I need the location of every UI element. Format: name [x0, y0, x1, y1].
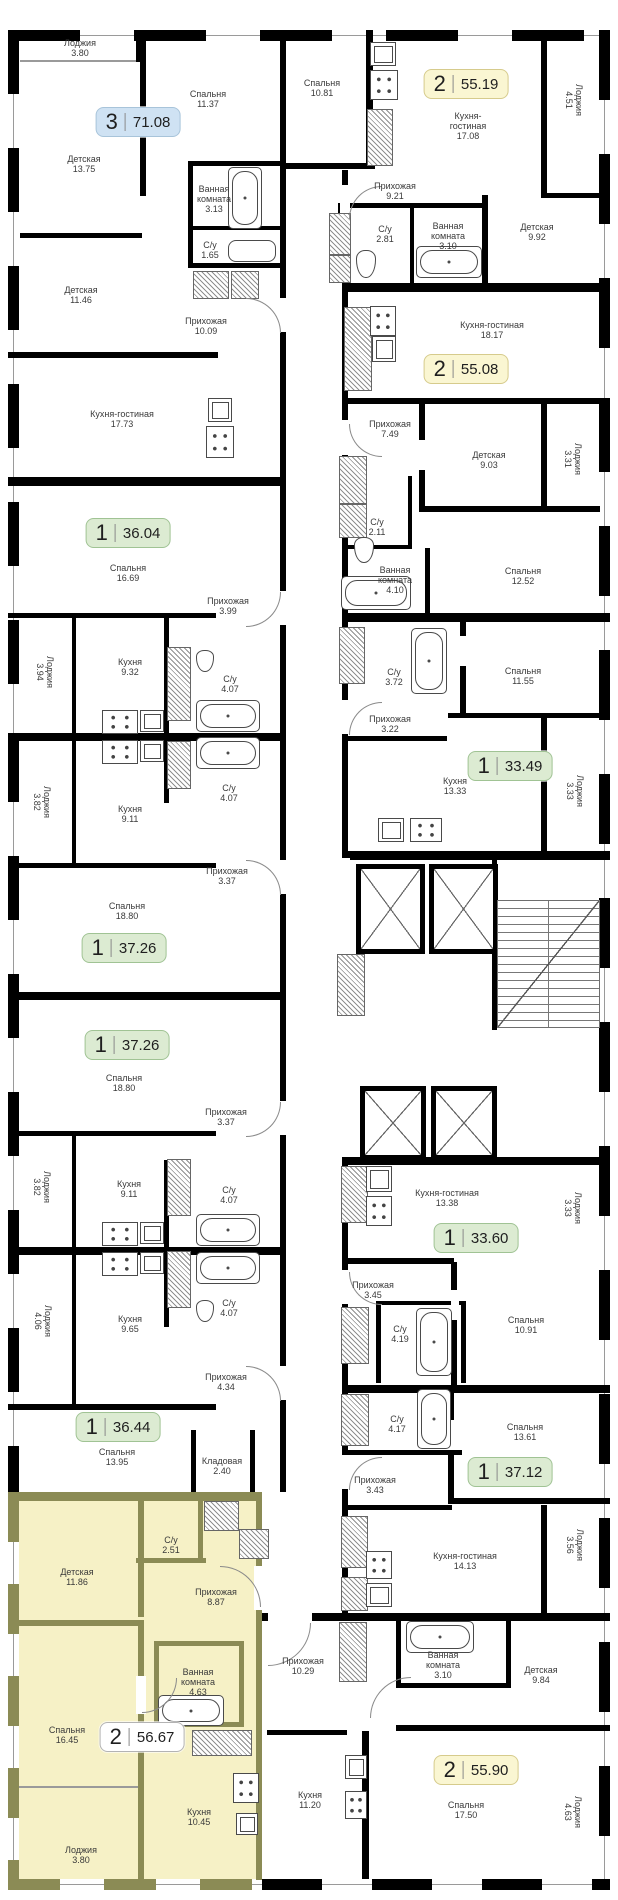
- room-label: Кухня10.45: [187, 1807, 211, 1827]
- room-label: Прихожая8.87: [195, 1587, 237, 1607]
- room-label: Кухня9.32: [118, 657, 142, 677]
- room-label: Прихожая3.37: [205, 1107, 247, 1127]
- sink-icon: [370, 42, 396, 66]
- room-label: Детская9.03: [472, 450, 505, 470]
- sink-icon: [140, 740, 164, 762]
- elevator-shaft: [431, 1086, 497, 1160]
- room-label: Лоджия3.82: [32, 786, 52, 818]
- sit-bath-icon: [228, 240, 276, 262]
- room-label: С/у4.17: [388, 1414, 406, 1434]
- perimeter-wall-left-highlight: [8, 1492, 19, 1890]
- room-label: Детская11.46: [64, 285, 97, 305]
- sink-icon: [208, 398, 232, 422]
- stove-icon: [366, 1196, 392, 1226]
- bathtub-icon: [196, 1214, 260, 1246]
- room-label: С/у2.11: [369, 517, 386, 537]
- bathtub-icon: [416, 1308, 452, 1376]
- stove-icon: [102, 1252, 138, 1276]
- room-label: Лоджия3.56: [565, 1529, 585, 1561]
- apartment-badge[interactable]: 133.60: [434, 1223, 519, 1253]
- stove-icon: [366, 1551, 392, 1579]
- room-label: Прихожая10.09: [185, 316, 227, 336]
- room-label: Детская9.84: [524, 1665, 557, 1685]
- stove-icon: [345, 1791, 367, 1819]
- room-label: Прихожая9.21: [374, 181, 416, 201]
- perimeter-wall-bottom: [262, 1879, 610, 1890]
- stove-icon: [102, 1222, 138, 1246]
- apartment-badge[interactable]: 136.04: [86, 518, 171, 548]
- bathtub-icon: [417, 1389, 451, 1449]
- room-label: Лоджия3.33: [565, 775, 585, 807]
- room-label: Прихожая3.43: [354, 1475, 396, 1495]
- room-label: С/у4.19: [391, 1324, 409, 1344]
- bathtub-icon: [196, 1252, 260, 1284]
- elevator-shaft: [356, 864, 425, 954]
- room-label: Прихожая3.45: [352, 1280, 394, 1300]
- stove-icon: [410, 818, 442, 842]
- sink-icon: [140, 1252, 164, 1274]
- room-label: С/у4.07: [220, 783, 238, 803]
- apartment-badge[interactable]: 255.08: [424, 354, 509, 384]
- room-label: Лоджия4.51: [564, 84, 584, 116]
- room-label: Ванная комната3.10: [411, 1650, 475, 1680]
- apartment-badge[interactable]: 255.19: [424, 69, 509, 99]
- room-label: Лоджия4.06: [33, 1305, 53, 1337]
- room-label: Спальня17.50: [448, 1800, 484, 1820]
- room-label: Спальня11.37: [190, 89, 226, 109]
- room-label: С/у2.51: [162, 1535, 180, 1555]
- room-label: Детская9.92: [520, 222, 553, 242]
- room-label: Спальня13.61: [507, 1422, 543, 1442]
- room-label: Спальня10.91: [508, 1315, 544, 1335]
- elevator-shaft: [360, 1086, 426, 1160]
- room-label: Кухня-гостиная17.73: [90, 409, 154, 429]
- room-label: Прихожая10.29: [282, 1656, 324, 1676]
- room-label: Кухня11.20: [298, 1790, 322, 1810]
- room-label: Лоджия4.63: [563, 1796, 583, 1828]
- room-label: Детская13.75: [67, 154, 100, 174]
- room-label: Лоджия3.33: [563, 1192, 583, 1224]
- room-label: Спальня11.55: [505, 666, 541, 686]
- perimeter-wall-top: [8, 30, 610, 41]
- stove-icon: [370, 70, 398, 100]
- room-label: С/у4.07: [220, 1298, 238, 1318]
- bathtub-icon: [196, 700, 260, 732]
- sink-icon: [378, 818, 404, 842]
- room-label: Ванная комната3.10: [419, 221, 477, 251]
- toilet-icon: [356, 250, 376, 278]
- perimeter-wall-bottom-highlight: [8, 1879, 262, 1890]
- apartment-badge[interactable]: 137.26: [82, 933, 167, 963]
- room-label: Детская11.86: [60, 1567, 93, 1587]
- room-label: Спальня18.80: [109, 901, 145, 921]
- stove-icon: [206, 426, 234, 458]
- perimeter-wall-right: [599, 30, 610, 1890]
- sink-icon: [140, 1222, 164, 1244]
- apartment-badge[interactable]: 133.49: [468, 751, 553, 781]
- sink-icon: [366, 1583, 392, 1607]
- room-label: Лоджия3.31: [563, 443, 583, 475]
- toilet-icon: [196, 1300, 214, 1322]
- toilet-icon: [196, 650, 214, 672]
- room-label: Кухня-гостиная14.13: [433, 1551, 497, 1571]
- stove-icon: [370, 306, 396, 336]
- room-label: Лоджия3.82: [32, 1171, 52, 1203]
- room-label: Кухня-гостиная17.08: [438, 111, 498, 141]
- room-label: Кухня-гостиная18.17: [460, 320, 524, 340]
- bathtub-icon: [196, 737, 260, 769]
- room-label: Спальня10.81: [304, 78, 340, 98]
- room-label: Спальня12.52: [505, 566, 541, 586]
- room-label: Спальня16.45: [49, 1725, 85, 1745]
- room-label: С/у1.65: [201, 240, 219, 260]
- stove-icon: [102, 740, 138, 764]
- apartment-badge[interactable]: 255.90: [434, 1755, 519, 1785]
- room-label: Ванная комната4.63: [166, 1667, 230, 1697]
- sink-icon: [366, 1166, 392, 1192]
- bathtub-icon: [411, 628, 447, 694]
- apartment-badge[interactable]: 371.08: [96, 107, 181, 137]
- room-label: Кухня9.11: [118, 804, 142, 824]
- sink-icon: [236, 1813, 258, 1835]
- room-label: Кухня9.11: [117, 1179, 141, 1199]
- floor-plan: Лоджия3.80Спальня11.37Детская13.75Ванная…: [0, 0, 618, 1900]
- room-label: Спальня13.95: [99, 1447, 135, 1467]
- room-label: Кухня13.33: [443, 776, 467, 796]
- room-label: Кухня-гостиная13.38: [415, 1188, 479, 1208]
- room-label: С/у4.07: [221, 674, 239, 694]
- room-label: Лоджия3.80: [64, 38, 96, 58]
- room-label: Спальня16.69: [110, 563, 146, 583]
- room-label: С/у4.07: [220, 1185, 238, 1205]
- stove-icon: [233, 1773, 259, 1803]
- room-label: С/у2.81: [376, 224, 394, 244]
- apartment-badge[interactable]: 256.67: [100, 1722, 185, 1752]
- room-label: С/у3.72: [385, 667, 403, 687]
- room-label: Ванная комната3.13: [186, 184, 242, 214]
- apartment-badge[interactable]: 136.44: [76, 1412, 161, 1442]
- room-label: Кухня9.65: [118, 1314, 142, 1334]
- sink-icon: [345, 1755, 367, 1779]
- room-label: Прихожая3.37: [206, 866, 248, 886]
- staircase: [497, 900, 600, 1028]
- toilet-icon: [354, 537, 374, 563]
- room-label: Спальня18.80: [106, 1073, 142, 1093]
- room-label: Лоджия3.94: [35, 656, 55, 688]
- room-label: Прихожая7.49: [369, 419, 411, 439]
- room-label: Лоджия3.80: [65, 1845, 97, 1865]
- perimeter-wall-left: [8, 30, 19, 1492]
- room-label: Прихожая3.22: [369, 714, 411, 734]
- stove-icon: [102, 710, 138, 734]
- room-label: Ванная комната4.10: [363, 565, 427, 595]
- room-label: Кладовая2.40: [202, 1456, 242, 1476]
- bathtub-icon: [406, 1621, 474, 1653]
- sink-icon: [140, 710, 164, 732]
- room-label: Прихожая3.99: [207, 596, 249, 616]
- room-label: Прихожая4.34: [205, 1372, 247, 1392]
- apartment-badge[interactable]: 137.26: [85, 1030, 170, 1060]
- apartment-badge[interactable]: 137.12: [468, 1457, 553, 1487]
- sink-icon: [372, 336, 396, 362]
- elevator-shaft: [429, 864, 498, 954]
